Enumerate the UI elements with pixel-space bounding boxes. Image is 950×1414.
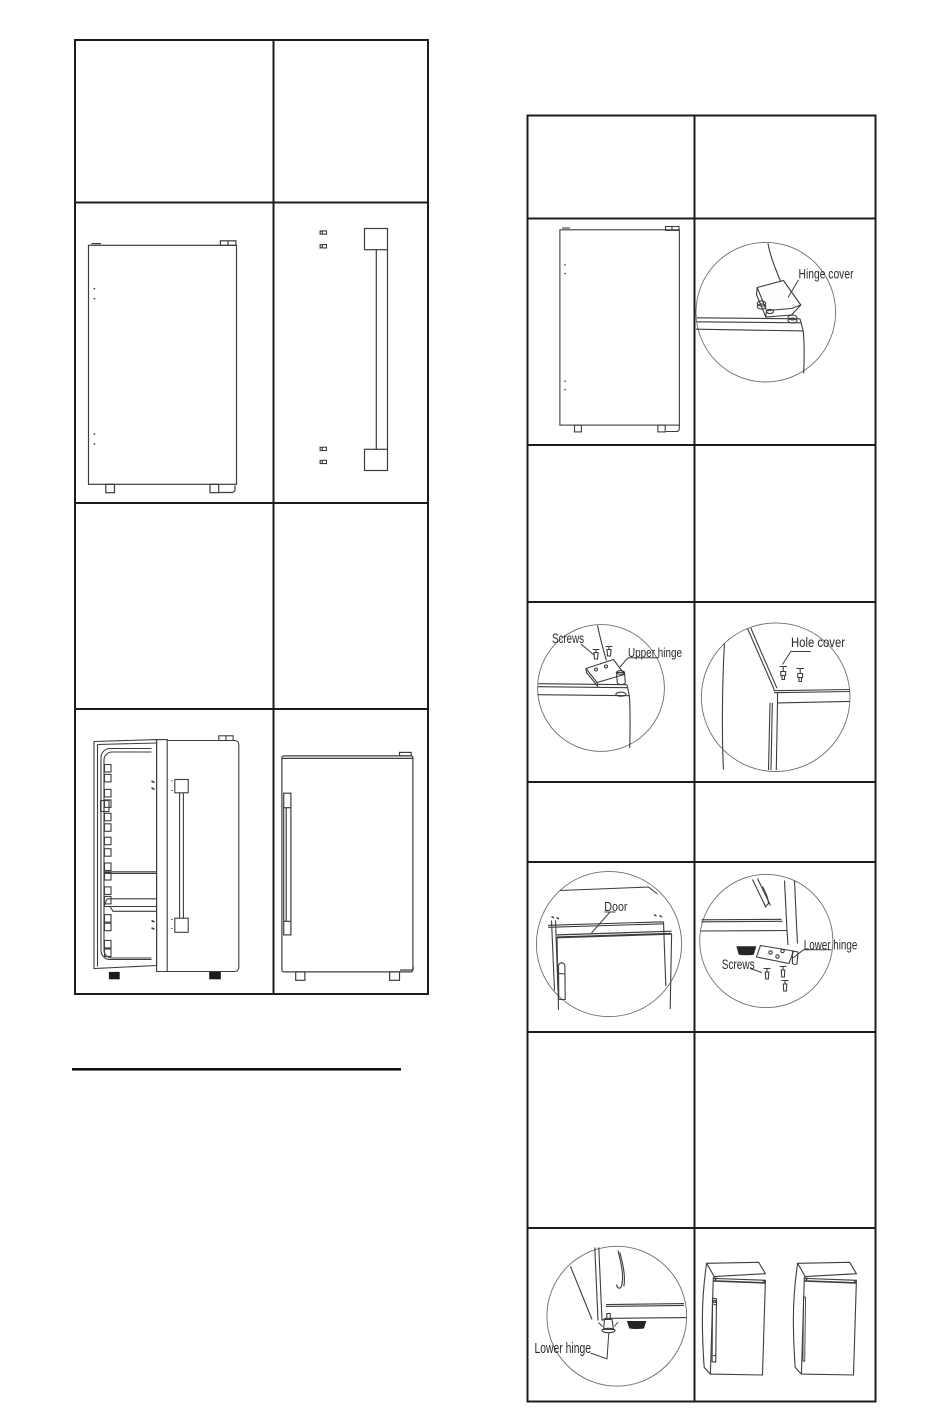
svg-text:Hole cover: Hole cover: [791, 635, 845, 650]
svg-text:Lower hinge: Lower hinge: [804, 937, 858, 952]
svg-text:Screws: Screws: [552, 631, 584, 646]
svg-text:Door: Door: [604, 900, 627, 914]
svg-text:Upper hinge: Upper hinge: [628, 645, 682, 660]
svg-text:Lower hinge: Lower hinge: [535, 1341, 592, 1357]
svg-text:Hinge cover: Hinge cover: [799, 267, 854, 282]
svg-text:Screws: Screws: [722, 957, 755, 972]
